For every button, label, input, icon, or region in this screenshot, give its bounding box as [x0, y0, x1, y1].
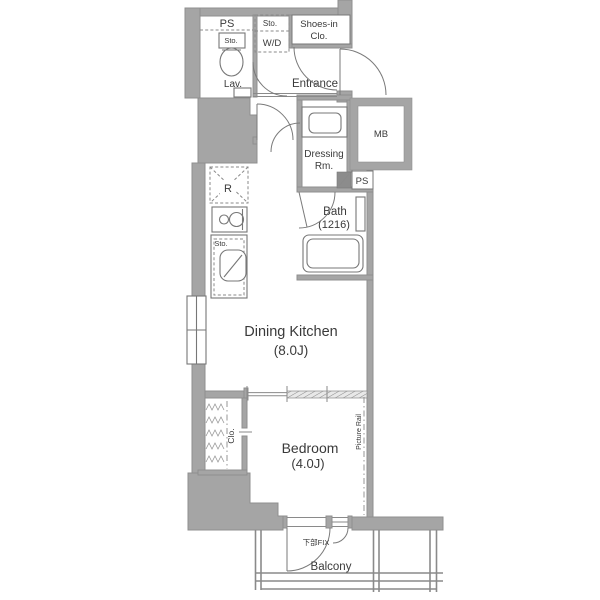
label-wd-storage: Sto. — [263, 19, 277, 28]
hanger-symbol-4 — [206, 443, 224, 449]
label-dining-kitchen: Dining Kitchen — [244, 324, 338, 340]
kitchen: R Sto. — [210, 167, 248, 298]
label-fix-window: 下部FIX — [303, 537, 330, 547]
label-pipe-space-top: PS — [220, 18, 235, 30]
wall-hall-door-jamb — [253, 137, 257, 144]
fix-window-arc — [333, 528, 348, 543]
wall-closet-east-upper — [242, 398, 247, 428]
hanger-symbol-1 — [206, 404, 224, 410]
label-lavatory: Lav. — [224, 79, 242, 90]
label-bath-size: (1216) — [318, 219, 350, 231]
label-dressing-1: Dressing — [304, 149, 343, 160]
label-shoes-closet-1: Shoes-in — [300, 19, 338, 30]
label-toilet-storage: Sto. — [224, 36, 237, 45]
wall-closet-east-lower — [242, 436, 247, 470]
wall-left-lower — [192, 363, 205, 475]
label-balcony: Balcony — [311, 561, 352, 573]
wall-bath-bottom — [297, 275, 373, 280]
label-meter-box: MB — [374, 129, 388, 140]
label-pipe-space-right: PS — [356, 176, 369, 187]
bathtub-inner — [307, 239, 359, 268]
label-shoes-closet-2: Clo. — [311, 31, 328, 42]
pipe-space-right: PS — [337, 171, 373, 189]
left-window — [187, 296, 206, 364]
wall-dk-bedroom-partition — [205, 391, 247, 398]
washer-dryer-space: Sto. W/D — [255, 15, 289, 52]
hall-door-arc — [257, 104, 293, 140]
door-jamb-right — [348, 516, 352, 528]
dining-kitchen: Dining Kitchen (8.0J) — [244, 324, 338, 358]
floor-plan-drawing: MB PS PS Sto. Lav. Sto. W/D Shoes-in Clo… — [0, 0, 600, 600]
hanger-symbol-5 — [206, 456, 224, 462]
pipe-space-top: PS — [200, 18, 253, 30]
wall-bottom-right-bar — [352, 517, 443, 530]
label-closet: Clo. — [226, 428, 236, 443]
label-kitchen-storage: Sto. — [214, 239, 227, 248]
window-mullion — [326, 516, 332, 528]
label-dressing-2: Rm. — [315, 161, 333, 172]
wall-hall-east — [297, 95, 302, 188]
floor-plan-page: MB PS PS Sto. Lav. Sto. W/D Shoes-in Clo… — [0, 0, 600, 600]
lavatory: Sto. Lav. — [219, 33, 251, 97]
wall-left-kitchen — [192, 163, 205, 298]
wall-dressing-top — [297, 95, 352, 100]
entrance-door-arc — [340, 49, 386, 95]
wall-lav-east — [253, 15, 257, 97]
wall-shoes-bottom — [292, 44, 352, 48]
entrance: Entrance — [253, 78, 338, 97]
wall-closet-bottom — [198, 470, 247, 475]
washstand-basin — [309, 113, 341, 133]
label-bedroom-size: (4.0J) — [291, 456, 324, 471]
bedroom: Bedroom (4.0J) Picture Rail — [282, 397, 364, 515]
shoes-closet: Shoes-in Clo. — [292, 15, 350, 44]
label-refrigerator: R — [224, 183, 232, 195]
label-bedroom: Bedroom — [282, 440, 339, 456]
wall-block-mid-left — [198, 98, 257, 163]
wall-right — [367, 170, 373, 517]
label-picture-rail: Picture Rail — [356, 414, 363, 450]
door-jamb-left — [283, 516, 287, 528]
label-washer-dryer: W/D — [263, 38, 282, 49]
balcony-opening — [283, 516, 352, 528]
wall-sw-stepped-block — [188, 473, 283, 530]
label-dining-kitchen-size: (8.0J) — [274, 343, 309, 358]
toilet-bowl — [220, 48, 243, 76]
dressing-door-arc — [271, 123, 300, 152]
balcony: 下部FIX Balcony — [255, 530, 443, 592]
wall-left-upper — [185, 8, 200, 98]
dressing-room: Dressing Rm. — [302, 107, 347, 172]
hanger-symbol-2 — [206, 417, 224, 423]
meter-box: MB — [350, 98, 412, 170]
bathroom: Bath (1216) — [303, 197, 365, 272]
dk-bedroom-partition — [247, 386, 367, 402]
bath-door-leaf — [299, 192, 307, 227]
wd-door-arc — [253, 62, 287, 96]
bath-counter — [356, 197, 365, 231]
hanger-symbol-3 — [206, 430, 224, 436]
label-bath: Bath — [323, 206, 347, 218]
